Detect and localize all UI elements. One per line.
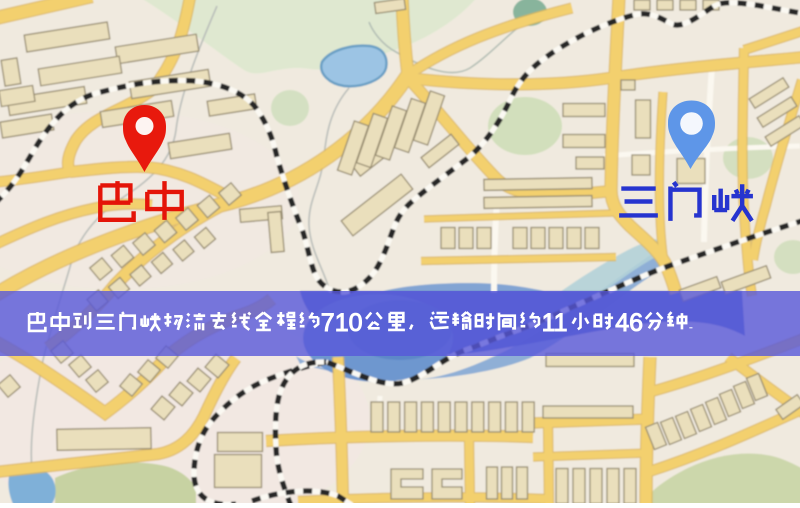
svg-text:46: 46 [615,309,643,337]
svg-text:11: 11 [542,309,568,337]
svg-text:710: 710 [321,309,363,337]
